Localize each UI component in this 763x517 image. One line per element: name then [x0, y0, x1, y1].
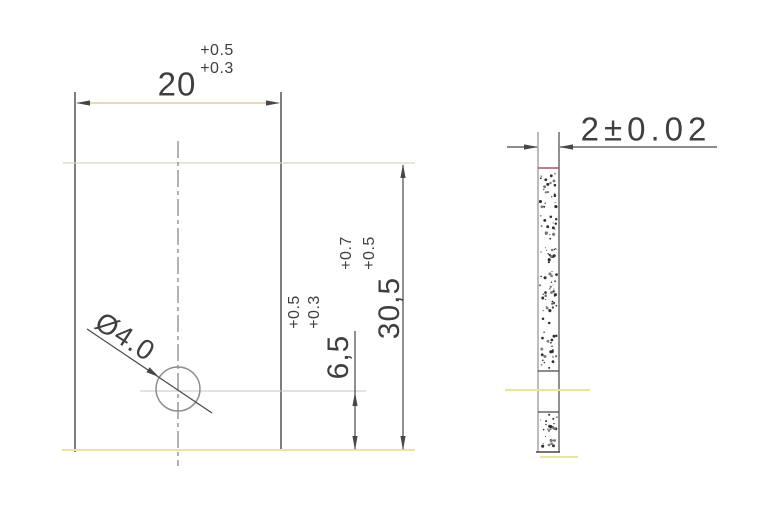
- hole-offset-tol-lower: +0.3: [307, 295, 323, 329]
- stipple-dot: [545, 420, 547, 422]
- stipple-dot: [548, 261, 550, 263]
- stipple-dot: [549, 238, 551, 240]
- stipple-dot: [547, 191, 549, 193]
- stipple-dot: [555, 335, 557, 337]
- stipple-dot: [554, 249, 556, 251]
- stipple-upper: [539, 173, 558, 369]
- stipple-dot: [553, 222, 554, 223]
- stipple-dot: [556, 305, 558, 307]
- stipple-dot: [546, 225, 549, 228]
- stipple-dot: [551, 339, 554, 342]
- thickness-dim-text: 2±0.02: [581, 113, 712, 146]
- stipple-dot: [552, 284, 553, 285]
- stipple-dot: [553, 288, 554, 289]
- stipple-dot: [545, 232, 548, 235]
- stipple-dot: [553, 427, 556, 430]
- thickness-arrow-left: [524, 144, 538, 149]
- stipple-dot: [551, 271, 552, 272]
- stipple-dot: [552, 233, 555, 236]
- stipple-dot: [549, 182, 551, 184]
- stipple-dot: [549, 254, 551, 256]
- hole-leader-arrow: [146, 367, 159, 377]
- stipple-dot: [551, 303, 553, 305]
- stipple-dot: [540, 276, 542, 278]
- stipple-dot: [553, 423, 554, 424]
- stipple-dot: [546, 183, 549, 186]
- height-tol-lower: +0.5: [362, 236, 378, 270]
- stipple-dot: [548, 430, 550, 432]
- stipple-dot: [555, 202, 556, 203]
- technical-drawing-canvas: 20 +0.5 +0.3 30,5 +0.7 +0.5 6,5 +0.5 +0.…: [0, 0, 763, 517]
- stipple-dot: [541, 364, 543, 366]
- stipple-dot: [549, 425, 552, 428]
- stipple-dot: [543, 443, 544, 444]
- stipple-dot: [554, 295, 556, 297]
- stipple-dot: [554, 184, 557, 187]
- stipple-dot: [551, 346, 553, 348]
- stipple-dot: [549, 288, 550, 289]
- stipple-dot: [545, 191, 547, 193]
- stipple-dot: [551, 196, 552, 197]
- stipple-dot: [556, 416, 558, 418]
- stipple-dot: [540, 251, 542, 253]
- stipple-dot: [550, 439, 553, 442]
- stipple-dot: [552, 418, 554, 420]
- stipple-dot: [550, 291, 553, 294]
- stipple-dot: [540, 215, 542, 217]
- stipple-dot: [552, 226, 555, 229]
- stipple-dot: [548, 414, 550, 416]
- stipple-dot: [550, 275, 553, 278]
- stipple-dot: [552, 301, 554, 303]
- stipple-dot: [550, 342, 552, 344]
- hole-offset-dim-text: 6,5: [324, 335, 354, 380]
- stipple-dot: [550, 216, 553, 219]
- stipple-dot: [541, 225, 543, 227]
- width-dim-text: 20: [158, 68, 197, 101]
- stipple-dot: [539, 284, 541, 286]
- stipple-dot: [556, 249, 557, 250]
- height-dim-arrow-bottom: [400, 436, 405, 450]
- stipple-dot: [552, 349, 553, 350]
- stipple-dot: [554, 280, 556, 282]
- stipple-dot: [544, 291, 547, 294]
- stipple-dot: [555, 218, 557, 220]
- stipple-dot: [548, 309, 551, 312]
- stipple-dot: [554, 229, 555, 230]
- stipple-dot: [553, 179, 556, 182]
- stipple-dot: [543, 185, 546, 188]
- hole-offset-arrow-bottom: [352, 436, 357, 450]
- stipple-dot: [553, 439, 556, 442]
- stipple-dot: [552, 360, 555, 363]
- width-dim-arrow-left: [76, 100, 90, 105]
- stipple-dot: [548, 367, 550, 369]
- stipple-dot: [543, 189, 545, 191]
- stipple-dot: [554, 193, 556, 195]
- height-dim-text: 30,5: [375, 277, 405, 339]
- stipple-dot: [543, 429, 545, 431]
- stipple-dot: [552, 306, 554, 308]
- stipple-dot: [552, 444, 555, 447]
- stipple-dot: [549, 350, 552, 353]
- stipple-dot: [544, 276, 547, 279]
- stipple-dot: [549, 428, 551, 430]
- stipple-dot: [548, 258, 551, 261]
- stipple-dot: [543, 331, 544, 332]
- hole-offset-arrow-top: [352, 392, 357, 406]
- stipple-dot: [548, 444, 551, 447]
- stipple-dot: [540, 419, 541, 420]
- stipple-dot: [546, 250, 547, 251]
- stipple-dot: [542, 359, 544, 361]
- stipple-dot: [541, 445, 544, 448]
- stipple-dot: [541, 205, 544, 208]
- stipple-dot: [543, 219, 546, 222]
- width-tol-lower: +0.3: [200, 61, 234, 77]
- stipple-dot: [543, 294, 544, 295]
- drawing-linework: [0, 0, 763, 517]
- stipple-dot: [545, 299, 546, 300]
- side-view: [505, 132, 717, 457]
- stipple-dot: [546, 306, 548, 308]
- stipple-dot: [541, 175, 542, 176]
- stipple-dot: [543, 355, 546, 358]
- stipple-dot: [555, 355, 557, 357]
- stipple-dot: [547, 253, 548, 254]
- stipple-dot: [549, 234, 550, 235]
- hole-offset-tol-upper: +0.5: [287, 295, 303, 329]
- stipple-dot: [541, 297, 544, 300]
- stipple-dot: [545, 203, 546, 204]
- stipple-lower: [540, 414, 558, 448]
- stipple-dot: [548, 322, 550, 324]
- stipple-dot: [542, 317, 545, 320]
- stipple-dot: [540, 348, 543, 351]
- height-dim-arrow-top: [400, 164, 405, 178]
- stipple-dot: [553, 302, 555, 304]
- stipple-dot: [544, 178, 547, 181]
- stipple-dot: [554, 205, 557, 208]
- stipple-dot: [541, 353, 544, 356]
- stipple-dot: [550, 174, 553, 177]
- front-view: [62, 92, 415, 466]
- stipple-dot: [553, 335, 556, 338]
- stipple-dot: [555, 222, 557, 224]
- stipple-dot: [550, 286, 552, 288]
- stipple-dot: [545, 247, 546, 248]
- stipple-dot: [550, 442, 553, 445]
- stipple-dot: [544, 362, 546, 364]
- stipple-dot: [541, 337, 544, 340]
- stipple-dot: [545, 424, 547, 426]
- stipple-dot: [543, 310, 544, 311]
- stipple-dot: [540, 177, 542, 179]
- stipple-dot: [551, 249, 554, 252]
- stipple-dot: [554, 173, 556, 175]
- stipple-dot: [555, 273, 558, 276]
- stipple-dot: [547, 340, 550, 343]
- stipple-dot: [545, 436, 546, 437]
- stipple-dot: [540, 200, 542, 202]
- stipple-dot: [552, 356, 553, 357]
- stipple-dot: [551, 281, 552, 282]
- width-dim-arrow-right: [266, 100, 280, 105]
- width-tol-upper: +0.5: [200, 43, 234, 59]
- height-tol-upper: +0.7: [339, 236, 355, 270]
- thickness-arrow-right: [559, 144, 573, 149]
- stipple-dot: [544, 294, 547, 297]
- stipple-dot: [543, 206, 545, 208]
- stipple-dot: [547, 429, 548, 430]
